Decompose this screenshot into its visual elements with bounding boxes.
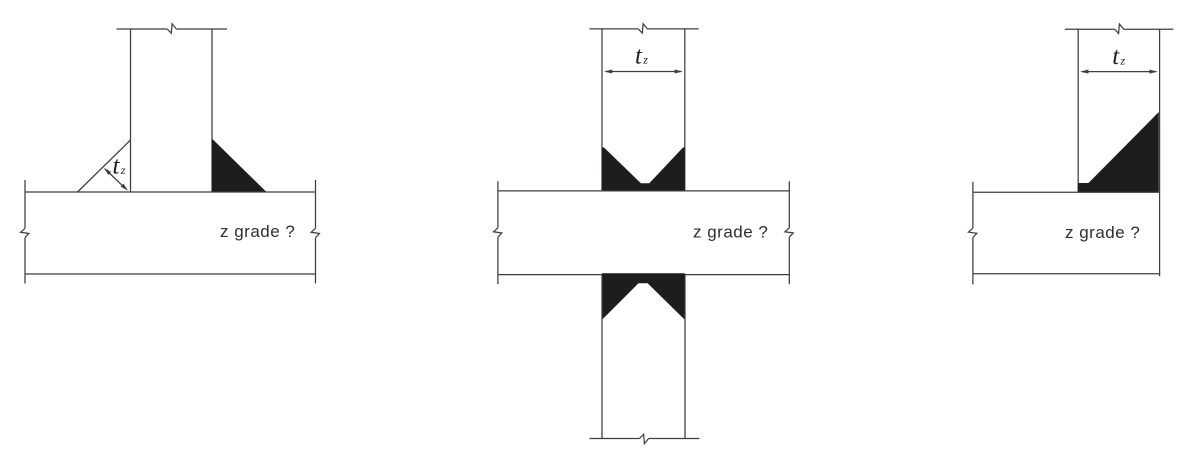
svg-text:z: z (1120, 53, 1126, 67)
svg-text:t: t (1112, 43, 1120, 70)
svg-text:z grade ?: z grade ? (1065, 223, 1140, 242)
svg-text:z grade ?: z grade ? (693, 222, 768, 241)
svg-text:z: z (120, 163, 126, 177)
svg-text:z: z (642, 53, 648, 67)
svg-text:z grade ?: z grade ? (220, 222, 295, 241)
svg-text:t: t (113, 153, 121, 180)
svg-text:t: t (635, 42, 643, 69)
